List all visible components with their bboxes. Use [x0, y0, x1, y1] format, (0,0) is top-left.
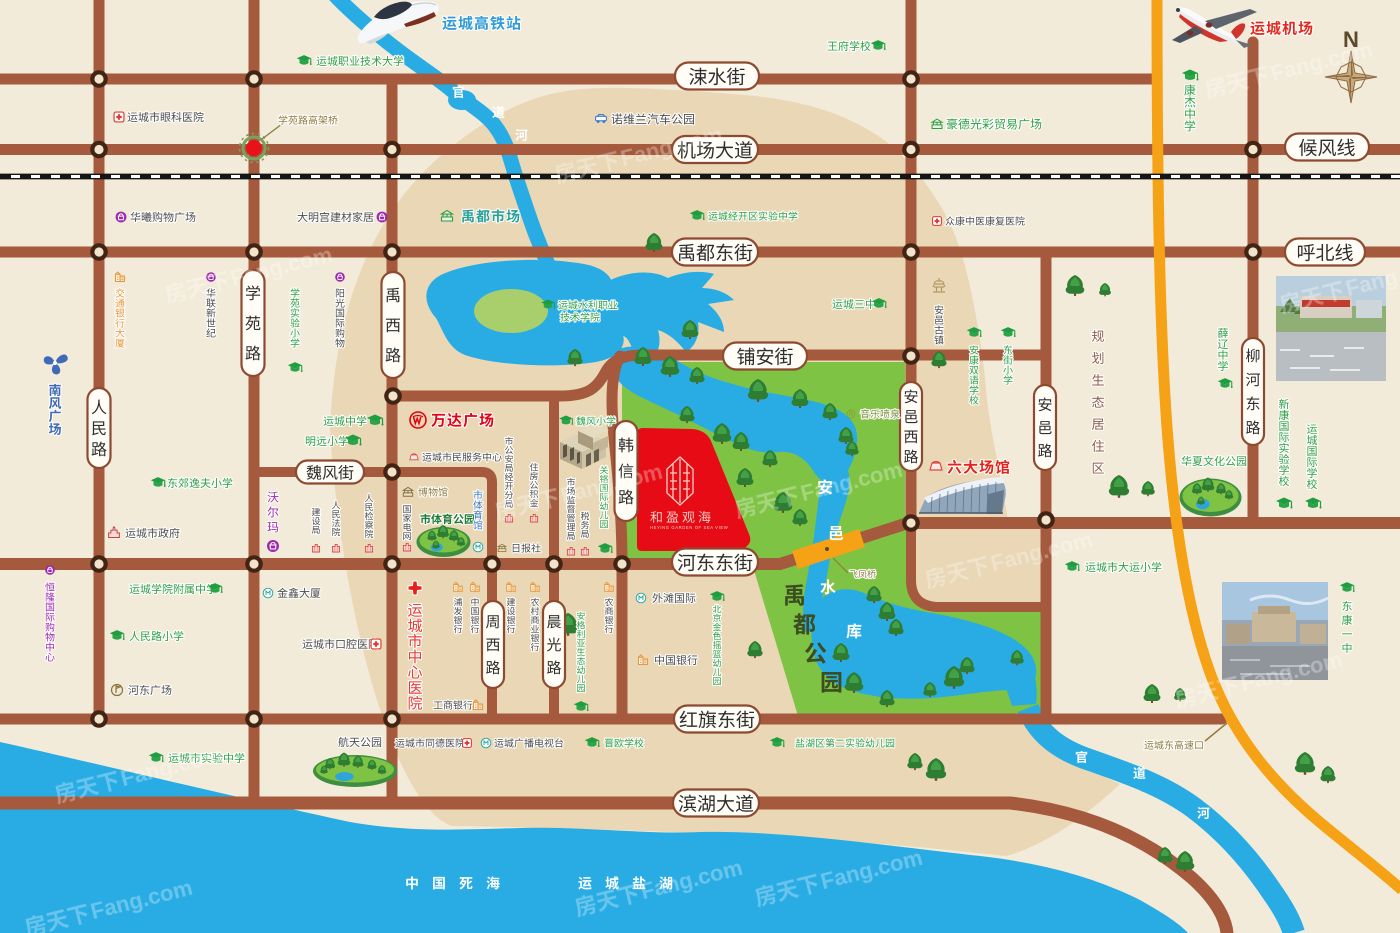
svg-text:HEYING GARDEN OF SEA VIEW: HEYING GARDEN OF SEA VIEW	[650, 525, 728, 530]
